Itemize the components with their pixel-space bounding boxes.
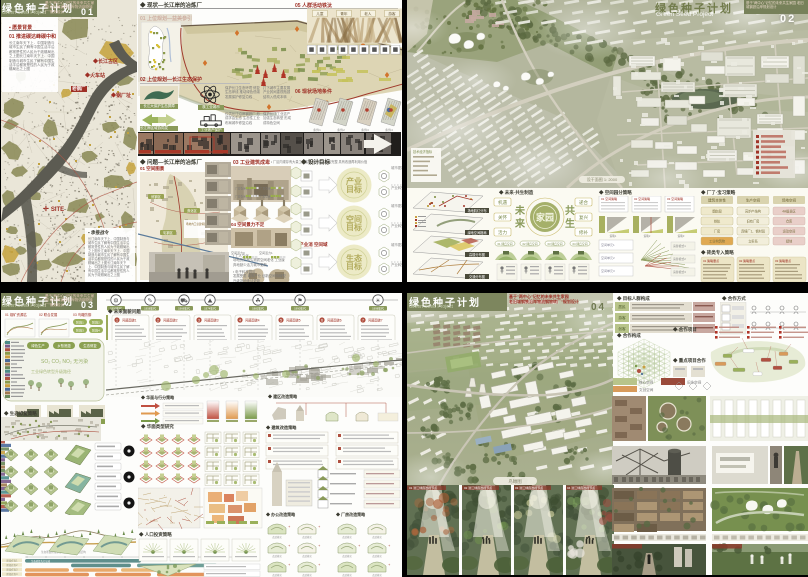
svg-text:✎: ✎ [147,298,152,305]
svg-text:问题面貌3: 问题面貌3 [204,318,219,323]
svg-text:02 联合发展: 02 联合发展 [39,312,58,317]
svg-text:◆ 华面与行分策略: ◆ 华面与行分策略 [140,395,175,400]
svg-text:策略2: 策略2 [644,234,651,238]
svg-text:+: + [288,524,291,529]
svg-text:改造模式: 改造模式 [342,573,352,577]
svg-text:⛟: ⛟ [180,299,188,305]
svg-text:共: 共 [565,204,575,217]
svg-text:空间单元2: 空间单元2 [601,255,615,260]
svg-text:02 绿丘空间: 02 绿丘空间 [522,242,537,246]
svg-text:策略1: 策略1 [610,234,617,238]
svg-text:+: + [318,524,321,529]
svg-text:阶段4: 阶段4 [92,327,100,332]
svg-text:01 煤矿资源枯: 01 煤矿资源枯 [5,312,27,317]
svg-text:改造模式: 改造模式 [272,573,282,577]
svg-text:◆ 砖类专入策略: ◆ 砖类专入策略 [700,249,734,256]
svg-text:活力: 活力 [498,229,507,236]
svg-text:交通分布图: 交通分布图 [469,274,485,279]
svg-text:场地空间: 场地空间 [782,198,797,203]
svg-text:改造模式: 改造模式 [372,554,382,558]
svg-text:◆ 合作项目: ◆ 合作项目 [672,326,697,333]
svg-text:演替模式3: 演替模式3 [673,270,686,274]
svg-text:5: 5 [280,319,282,323]
svg-text:仓库: 仓库 [786,219,793,224]
svg-text:改造模式: 改造模式 [372,573,382,577]
svg-text:老人: 老人 [364,11,372,16]
svg-text:改造模式: 改造模式 [342,535,352,539]
svg-text:◆ 未来面貌问题: ◆ 未来面貌问题 [107,308,141,315]
svg-text:⛰: ⛰ [207,298,212,305]
svg-text:改造模式: 改造模式 [272,554,282,558]
svg-text:01 空间策略: 01 空间策略 [601,196,617,201]
svg-text:炼钢区: 炼钢区 [151,194,161,199]
svg-text:改造模式: 改造模式 [342,554,352,558]
svg-text:旧有厂房: 旧有厂房 [747,219,760,224]
svg-text:☀: ☀ [375,298,380,305]
svg-text:改造模式: 改造模式 [372,535,382,539]
svg-text:来: 来 [514,217,526,230]
svg-text:产业转型: 产业转型 [391,185,402,190]
svg-text:居民: 居民 [618,304,626,309]
svg-text:乡愁底蕴: 乡愁底蕴 [57,343,71,348]
svg-text:文创空间: 文创空间 [639,387,654,392]
svg-text:◆ 厂房改造策略: ◆ 厂房改造策略 [335,511,366,517]
svg-text:演替模式2: 演替模式2 [673,257,686,261]
svg-text:生产空间: 生产空间 [746,198,761,203]
svg-text:儿童: 儿童 [316,11,324,16]
svg-text:03 鸟瞰防御: 03 鸟瞰防御 [73,312,92,317]
svg-text:改造模式: 改造模式 [302,535,312,539]
svg-text:+: + [388,543,391,548]
svg-text:演替模式1: 演替模式1 [673,244,686,248]
svg-text:◆ 重点项目合作: ◆ 重点项目合作 [672,357,706,364]
svg-text:04 绿丘空间: 04 绿丘空间 [572,242,587,246]
svg-text:02 策略要点: 02 策略要点 [739,258,755,263]
svg-text:03 滨江绿廊透视节点: 03 滨江绿廊透视节点 [515,485,543,490]
svg-text:02 空间策略: 02 空间策略 [634,196,650,201]
svg-text:未: 未 [514,204,525,217]
svg-text:+: + [388,562,391,567]
svg-text:核心空间: 核心空间 [639,380,654,385]
svg-text:03 策略要点: 03 策略要点 [775,258,791,263]
svg-text:目标: 目标 [346,261,362,271]
svg-text:阶段2: 阶段2 [92,319,100,324]
svg-text:+: + [288,543,291,548]
svg-text:阶段任务4: 阶段任务4 [7,572,19,576]
svg-text:改造模式: 改造模式 [302,554,312,558]
svg-text:运动空间: 运动空间 [783,229,796,234]
svg-text:连铸厂1、钢材段: 连铸厂1、钢材段 [741,229,766,234]
svg-text:6: 6 [321,319,323,323]
svg-text:03 空间策略: 03 空间策略 [667,196,683,201]
svg-text:3: 3 [198,319,200,323]
svg-text:问题面貌1: 问题面貌1 [122,318,137,323]
svg-text:条件1: 条件1 [313,127,321,132]
svg-text:◆ 人口投资策略: ◆ 人口投资策略 [138,531,172,538]
svg-text:问题面貌6: 问题面貌6 [327,318,342,323]
svg-text:空间活力0: 空间活力0 [231,250,245,255]
svg-text:技术经济指标: 技术经济指标 [413,149,433,154]
svg-text:空间单元3: 空间单元3 [601,268,615,273]
svg-text:城市更新: 城市更新 [391,242,402,247]
svg-text:焦化区: 焦化区 [187,208,197,213]
svg-text:+: + [358,543,361,548]
svg-text:鸟瞰图: 鸟瞰图 [508,478,522,485]
svg-text:修补: 修补 [579,229,588,236]
svg-text:设干面图 1: 2000: 设干面图 1: 2000 [587,176,618,182]
svg-text:问题面貌2: 问题面貌2 [163,318,178,323]
svg-text:高炉产结构: 高炉产结构 [745,209,761,214]
svg-text:问题面貌7: 问题面貌7 [368,318,383,323]
svg-text:产业转型: 产业转型 [391,262,402,267]
svg-text:城市更新: 城市更新 [391,165,402,170]
svg-text:绿色生产: 绿色生产 [31,343,45,348]
svg-text:场地肌红分布: 场地肌红分布 [467,208,486,213]
svg-text:绿地: 绿地 [786,239,793,244]
svg-text:家园: 家园 [536,212,554,223]
svg-text:青年: 青年 [340,11,348,16]
svg-text:阶段任务2: 阶段任务2 [7,563,19,567]
svg-text:建筑本体性: 建筑本体性 [708,198,726,203]
svg-text:创客: 创客 [618,326,626,331]
svg-text:条件4: 条件4 [385,127,393,132]
svg-text:2: 2 [157,319,159,323]
svg-text:7: 7 [362,319,364,323]
svg-text:◆ 办公改造策略: ◆ 办公改造策略 [265,511,296,517]
svg-text:⚙: ⚙ [113,298,118,305]
svg-text:生: 生 [565,217,575,230]
svg-text:工业构筑物: 工业构筑物 [709,239,726,244]
svg-text:高楼分布图: 高楼分布图 [469,252,485,257]
svg-text:改造模式: 改造模式 [302,573,312,577]
svg-text:递合: 递合 [579,199,588,206]
svg-text:+: + [288,562,291,567]
svg-text:03 绿丘空间: 03 绿丘空间 [547,242,562,246]
svg-text:生态修复: 生态修复 [83,343,97,348]
svg-text:铁轨: 铁轨 [714,219,721,224]
svg-text:+: + [318,562,321,567]
svg-text:阶段1: 阶段1 [76,319,84,324]
svg-text:生态修复先行启动: 生态修复先行启动 [31,559,51,563]
svg-text:01 策略要点: 01 策略要点 [703,258,719,263]
svg-text:厂房: 厂房 [714,229,720,234]
svg-text:策略3: 策略3 [678,234,685,238]
svg-text:目标: 目标 [346,222,362,232]
svg-text:绿地空间格局: 绿地空间格局 [467,230,486,235]
svg-text:1: 1 [116,319,118,323]
svg-text:4: 4 [239,319,241,323]
svg-text:城市更新: 城市更新 [391,203,402,208]
svg-text:目标: 目标 [346,184,362,194]
svg-text:改造模式: 改造模式 [272,535,282,539]
svg-text:复兴: 复兴 [579,214,588,221]
svg-text:条件2: 条件2 [337,127,345,132]
svg-text:机遇: 机遇 [498,199,507,206]
svg-text:阶段3: 阶段3 [76,327,84,332]
svg-text:游客: 游客 [388,11,396,16]
svg-text:工业绿色转型升级路径: 工业绿色转型升级路径 [31,368,71,374]
svg-text:☘: ☘ [255,298,260,305]
svg-text:01 滨江绿廊透视节点: 01 滨江绿廊透视节点 [409,485,437,490]
svg-text:关怀: 关怀 [498,214,507,221]
svg-text:02 滨江绿廊透视节点: 02 滨江绿廊透视节点 [464,485,492,490]
svg-text:04 滨江绿廊透视节点: 04 滨江绿廊透视节点 [567,485,595,490]
svg-text:空间单元1: 空间单元1 [601,242,615,247]
svg-text:问题面貌4: 问题面貌4 [245,318,260,323]
svg-text:SO₂ CO₂ NO₂ 无污染: SO₂ CO₂ NO₂ 无污染 [41,358,88,365]
svg-text:4A级景区: 4A级景区 [782,209,796,214]
svg-text:立剪系: 立剪系 [748,239,758,244]
svg-text:01 绿丘空间: 01 绿丘空间 [497,242,512,246]
svg-text:阶段任务3: 阶段任务3 [7,568,19,572]
svg-text:+: + [318,543,321,548]
svg-text:游客: 游客 [618,315,626,320]
svg-text:◆ 建筑改造策略: ◆ 建筑改造策略 [265,424,297,431]
svg-text:烟囱段: 烟囱段 [712,209,722,214]
svg-text:◆ 建区改造策略: ◆ 建区改造策略 [267,393,298,399]
svg-text:问题面貌5: 问题面貌5 [286,318,301,323]
svg-text:条件3: 条件3 [361,127,369,132]
svg-text:阶段任务1: 阶段任务1 [7,558,19,562]
svg-text:空间活力1: 空间活力1 [259,250,273,255]
svg-text:⚑: ⚑ [297,298,302,305]
svg-text:产业转型: 产业转型 [391,223,402,228]
